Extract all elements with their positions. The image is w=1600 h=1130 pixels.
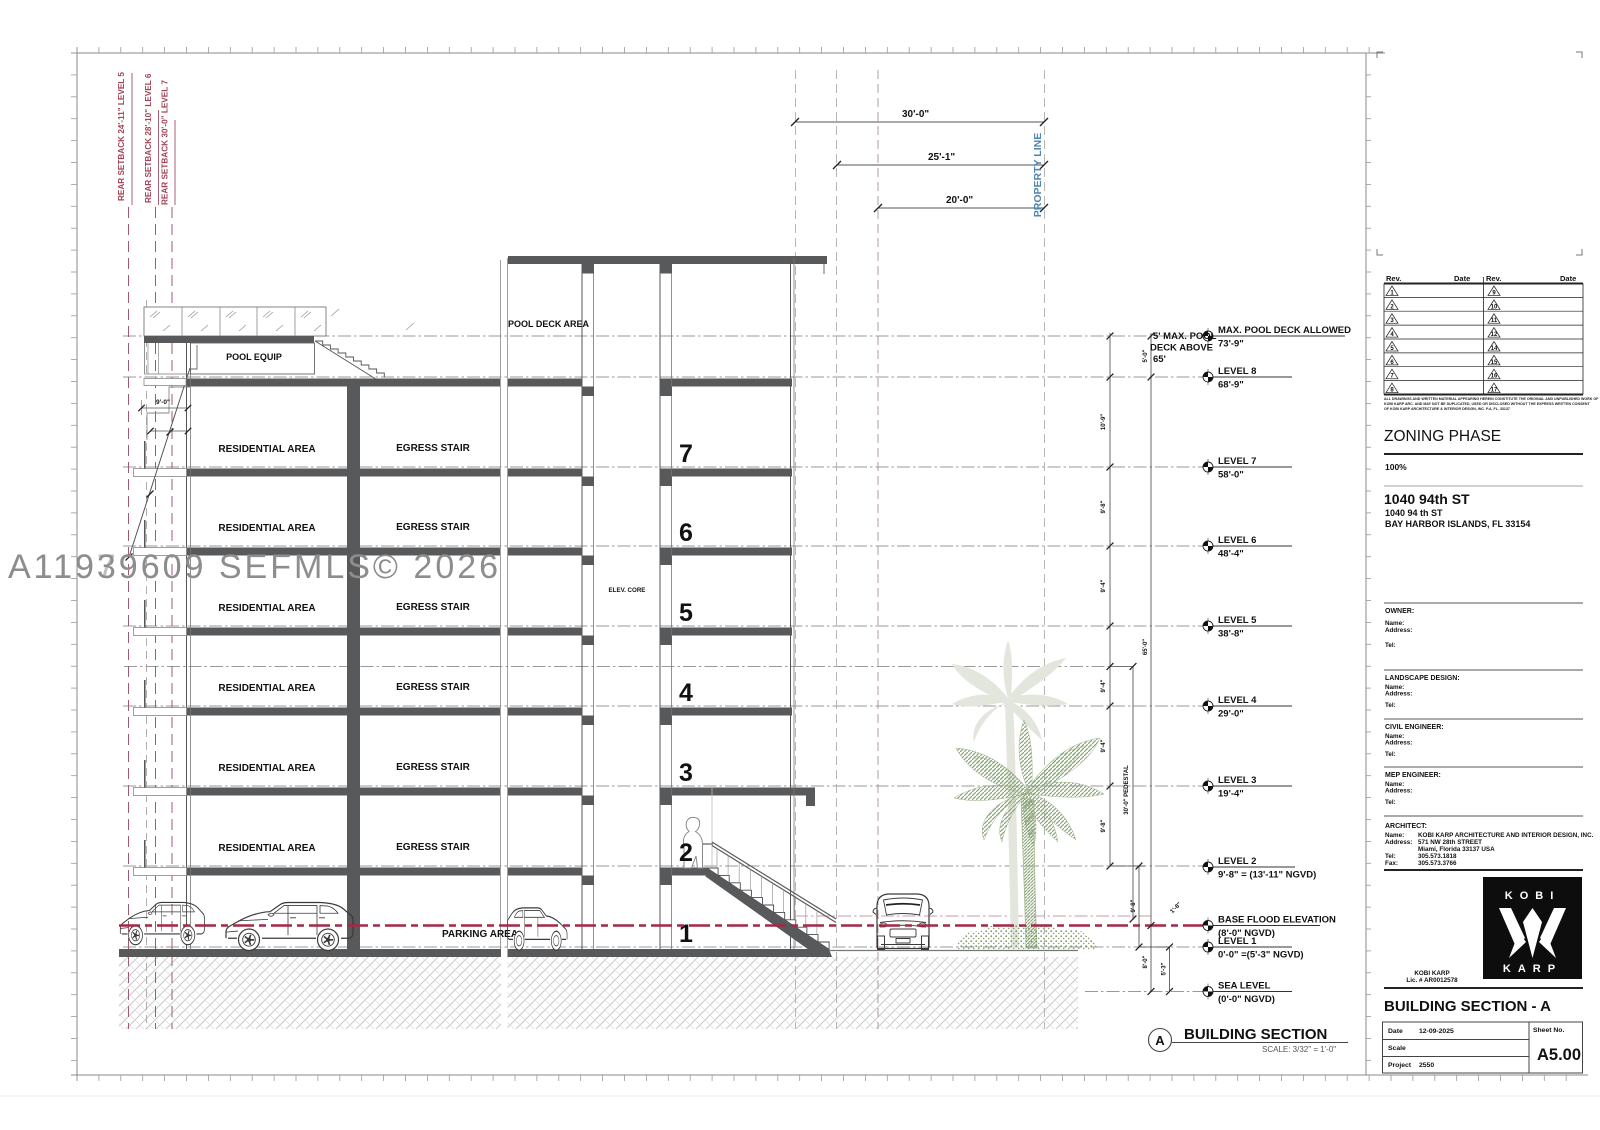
svg-text:2: 2 bbox=[679, 839, 693, 867]
svg-text:68'-9": 68'-9" bbox=[1218, 380, 1244, 391]
svg-text:9'-4": 9'-4" bbox=[1101, 679, 1107, 692]
svg-text:KARP: KARP bbox=[1503, 963, 1562, 975]
svg-text:17: 17 bbox=[1491, 388, 1498, 394]
svg-text:5' MAX. POOL: 5' MAX. POOL bbox=[1153, 331, 1217, 342]
svg-text:Name:: Name: bbox=[1385, 832, 1404, 839]
svg-text:6: 6 bbox=[679, 519, 693, 547]
svg-text:Date: Date bbox=[1388, 1028, 1403, 1035]
svg-text:LEVEL 5: LEVEL 5 bbox=[1218, 615, 1257, 626]
svg-text:REAR SETBACK 30'-0" LEVEL 7: REAR SETBACK 30'-0" LEVEL 7 bbox=[161, 80, 170, 205]
svg-text:RESIDENTIAL AREA: RESIDENTIAL AREA bbox=[218, 843, 315, 854]
svg-text:BUILDING SECTION: BUILDING SECTION bbox=[1184, 1026, 1327, 1043]
svg-text:5'-3": 5'-3" bbox=[1162, 962, 1168, 975]
svg-text:BUILDING SECTION - A: BUILDING SECTION - A bbox=[1384, 998, 1551, 1015]
svg-text:A5.00: A5.00 bbox=[1537, 1046, 1581, 1064]
svg-text:EGRESS STAIR: EGRESS STAIR bbox=[396, 522, 470, 533]
svg-text:11: 11 bbox=[1491, 318, 1498, 324]
svg-text:LEVEL 1: LEVEL 1 bbox=[1218, 936, 1257, 947]
svg-text:ARCHITECT:: ARCHITECT: bbox=[1385, 823, 1427, 830]
svg-text:LEVEL 3: LEVEL 3 bbox=[1218, 775, 1256, 786]
svg-text:9'-4": 9'-4" bbox=[1101, 739, 1107, 752]
svg-text:100%: 100% bbox=[1385, 462, 1407, 472]
svg-text:POOL EQUIP: POOL EQUIP bbox=[226, 352, 282, 362]
svg-text:20'-0": 20'-0" bbox=[946, 195, 973, 206]
svg-text:Tel:: Tel: bbox=[1385, 702, 1396, 709]
svg-text:19'-4": 19'-4" bbox=[1218, 789, 1244, 800]
svg-text:Tel:: Tel: bbox=[1385, 642, 1396, 649]
svg-text:REAR SETBACK 24'-11" LEVEL 5: REAR SETBACK 24'-11" LEVEL 5 bbox=[117, 72, 126, 201]
svg-text:ALL DRAWINGS AND WRITTEN MATER: ALL DRAWINGS AND WRITTEN MATERIAL APPEAR… bbox=[1384, 397, 1599, 401]
svg-text:1040 94th ST: 1040 94th ST bbox=[1384, 491, 1470, 507]
svg-text:RESIDENTIAL AREA: RESIDENTIAL AREA bbox=[218, 444, 315, 455]
svg-text:Scale: Scale bbox=[1388, 1045, 1406, 1052]
svg-text:Tel:: Tel: bbox=[1385, 799, 1396, 806]
svg-text:305.573.1818: 305.573.1818 bbox=[1418, 853, 1457, 860]
svg-text:(0'-0" NGVD): (0'-0" NGVD) bbox=[1218, 994, 1275, 1005]
svg-text:25'-1": 25'-1" bbox=[928, 152, 955, 163]
svg-text:10: 10 bbox=[1491, 304, 1498, 310]
svg-text:571 NW 28th STREET: 571 NW 28th STREET bbox=[1418, 839, 1482, 846]
svg-text:12-09-2025: 12-09-2025 bbox=[1419, 1028, 1454, 1035]
svg-text:30'-0": 30'-0" bbox=[902, 109, 929, 120]
svg-text:Name:: Name: bbox=[1385, 620, 1404, 627]
svg-text:5: 5 bbox=[679, 599, 693, 627]
svg-text:Lic. # AR0012578: Lic. # AR0012578 bbox=[1406, 977, 1458, 984]
svg-text:Rev.: Rev. bbox=[1486, 274, 1501, 283]
svg-text:2550: 2550 bbox=[1419, 1062, 1434, 1069]
svg-text:Address:: Address: bbox=[1385, 740, 1412, 747]
svg-text:EGRESS STAIR: EGRESS STAIR bbox=[396, 842, 470, 853]
svg-text:Tel:: Tel: bbox=[1385, 853, 1396, 860]
svg-text:LEVEL 8: LEVEL 8 bbox=[1218, 366, 1256, 377]
svg-text:48'-4": 48'-4" bbox=[1218, 549, 1244, 560]
svg-text:Fax:: Fax: bbox=[1385, 860, 1398, 867]
svg-text:SCALE: 3/32" = 1'-0": SCALE: 3/32" = 1'-0" bbox=[1262, 1045, 1336, 1054]
svg-text:ZONING PHASE: ZONING PHASE bbox=[1384, 428, 1501, 445]
svg-text:LEVEL 4: LEVEL 4 bbox=[1218, 695, 1257, 706]
svg-text:OF KOBI KARP ARCHITECTURE & IN: OF KOBI KARP ARCHITECTURE & INTERIOR DES… bbox=[1384, 407, 1510, 411]
svg-text:RESIDENTIAL AREA: RESIDENTIAL AREA bbox=[218, 683, 315, 694]
svg-text:EGRESS STAIR: EGRESS STAIR bbox=[396, 762, 470, 773]
svg-text:PARKING AREA: PARKING AREA bbox=[442, 929, 518, 940]
svg-text:LEVEL 7: LEVEL 7 bbox=[1218, 456, 1256, 467]
svg-text:Sheet No.: Sheet No. bbox=[1533, 1027, 1564, 1034]
svg-text:Date: Date bbox=[1454, 274, 1470, 283]
svg-text:73'-9": 73'-9" bbox=[1218, 339, 1244, 350]
svg-text:65': 65' bbox=[1153, 354, 1166, 365]
svg-text:KOBI: KOBI bbox=[1505, 890, 1561, 902]
svg-text:14: 14 bbox=[1491, 346, 1498, 352]
svg-text:9'-8": 9'-8" bbox=[1101, 500, 1107, 513]
svg-text:KOBI KARP ARC. AND MAY NOT BE: KOBI KARP ARC. AND MAY NOT BE DUPLICATED… bbox=[1384, 402, 1590, 406]
svg-text:7: 7 bbox=[679, 440, 693, 468]
svg-text:MAX. POOL DECK ALLOWED: MAX. POOL DECK ALLOWED bbox=[1218, 325, 1351, 336]
svg-text:MEP ENGINEER:: MEP ENGINEER: bbox=[1385, 772, 1441, 779]
svg-text:LANDSCAPE DESIGN:: LANDSCAPE DESIGN: bbox=[1385, 675, 1460, 682]
svg-text:9'-0": 9'-0" bbox=[156, 399, 170, 406]
svg-text:30'-0" PEDESTAL: 30'-0" PEDESTAL bbox=[1124, 765, 1130, 815]
svg-text:KOBI KARP: KOBI KARP bbox=[1414, 970, 1449, 977]
svg-text:KOBI KARP ARCHITECTURE AND INT: KOBI KARP ARCHITECTURE AND INTERIOR DESI… bbox=[1418, 832, 1594, 839]
svg-text:POOL DECK AREA: POOL DECK AREA bbox=[508, 319, 590, 329]
svg-text:EGRESS STAIR: EGRESS STAIR bbox=[396, 682, 470, 693]
svg-text:0'-0" =(5'-3" NGVD): 0'-0" =(5'-3" NGVD) bbox=[1218, 950, 1304, 961]
svg-text:SEA LEVEL: SEA LEVEL bbox=[1218, 981, 1271, 992]
svg-text:38'-8": 38'-8" bbox=[1218, 629, 1244, 640]
svg-text:EGRESS STAIR: EGRESS STAIR bbox=[396, 443, 470, 454]
svg-text:EGRESS STAIR: EGRESS STAIR bbox=[396, 602, 470, 613]
svg-text:A: A bbox=[1155, 1033, 1165, 1048]
svg-text:9'-8": 9'-8" bbox=[1101, 819, 1107, 832]
svg-text:Address:: Address: bbox=[1385, 691, 1412, 698]
svg-text:LEVEL 2: LEVEL 2 bbox=[1218, 856, 1256, 867]
svg-text:RESIDENTIAL AREA: RESIDENTIAL AREA bbox=[218, 603, 315, 614]
svg-text:29'-0": 29'-0" bbox=[1218, 709, 1244, 720]
svg-text:16: 16 bbox=[1491, 374, 1498, 380]
svg-text:8'-0": 8'-0" bbox=[1143, 955, 1149, 968]
svg-text:OWNER:: OWNER: bbox=[1385, 608, 1414, 615]
svg-text:LEVEL 6: LEVEL 6 bbox=[1218, 535, 1256, 546]
svg-text:15: 15 bbox=[1491, 360, 1498, 366]
svg-text:BASE FLOOD ELEVATION: BASE FLOOD ELEVATION bbox=[1218, 915, 1336, 926]
svg-text:58'-0": 58'-0" bbox=[1218, 470, 1244, 481]
svg-text:RESIDENTIAL AREA: RESIDENTIAL AREA bbox=[218, 523, 315, 534]
svg-text:Rev.: Rev. bbox=[1386, 274, 1401, 283]
svg-text:BAY HARBOR ISLANDS, FL 33154: BAY HARBOR ISLANDS, FL 33154 bbox=[1385, 519, 1530, 529]
svg-text:Project: Project bbox=[1388, 1062, 1412, 1069]
svg-text:9'-8" = (13'-11" NGVD): 9'-8" = (13'-11" NGVD) bbox=[1218, 870, 1316, 881]
svg-text:Date: Date bbox=[1560, 274, 1576, 283]
svg-text:305.573.3766: 305.573.3766 bbox=[1418, 860, 1457, 867]
svg-text:65'-0": 65'-0" bbox=[1143, 639, 1149, 655]
svg-text:A11979609: A11979609 bbox=[8, 548, 206, 586]
svg-text:5'-0": 5'-0" bbox=[1143, 349, 1149, 362]
svg-text:12: 12 bbox=[1491, 332, 1498, 338]
svg-text:CIVIL ENGINEER:: CIVIL ENGINEER: bbox=[1385, 724, 1444, 731]
svg-text:1040 94 th ST: 1040 94 th ST bbox=[1385, 508, 1443, 518]
svg-text:PROPERTY LINE: PROPERTY LINE bbox=[1032, 133, 1044, 217]
svg-text:REAR SETBACK 28'-10" LEVEL 6: REAR SETBACK 28'-10" LEVEL 6 bbox=[144, 73, 153, 203]
svg-text:9'-8": 9'-8" bbox=[1131, 899, 1137, 912]
svg-text:3: 3 bbox=[679, 759, 693, 787]
svg-text:Tel:: Tel: bbox=[1385, 751, 1396, 758]
svg-text:10'-9": 10'-9" bbox=[1101, 414, 1107, 430]
svg-text:9'-4": 9'-4" bbox=[1101, 579, 1107, 592]
svg-text:4: 4 bbox=[679, 679, 693, 707]
svg-text:ELEV. CORE: ELEV. CORE bbox=[609, 587, 646, 594]
svg-text:Miami, Florida 33137 USA: Miami, Florida 33137 USA bbox=[1418, 846, 1495, 853]
svg-text:Address:: Address: bbox=[1385, 839, 1412, 846]
svg-text:RESIDENTIAL AREA: RESIDENTIAL AREA bbox=[218, 763, 315, 774]
svg-text:Address:: Address: bbox=[1385, 627, 1412, 634]
svg-text:Address:: Address: bbox=[1385, 788, 1412, 795]
svg-text:DECK ABOVE: DECK ABOVE bbox=[1150, 343, 1213, 354]
